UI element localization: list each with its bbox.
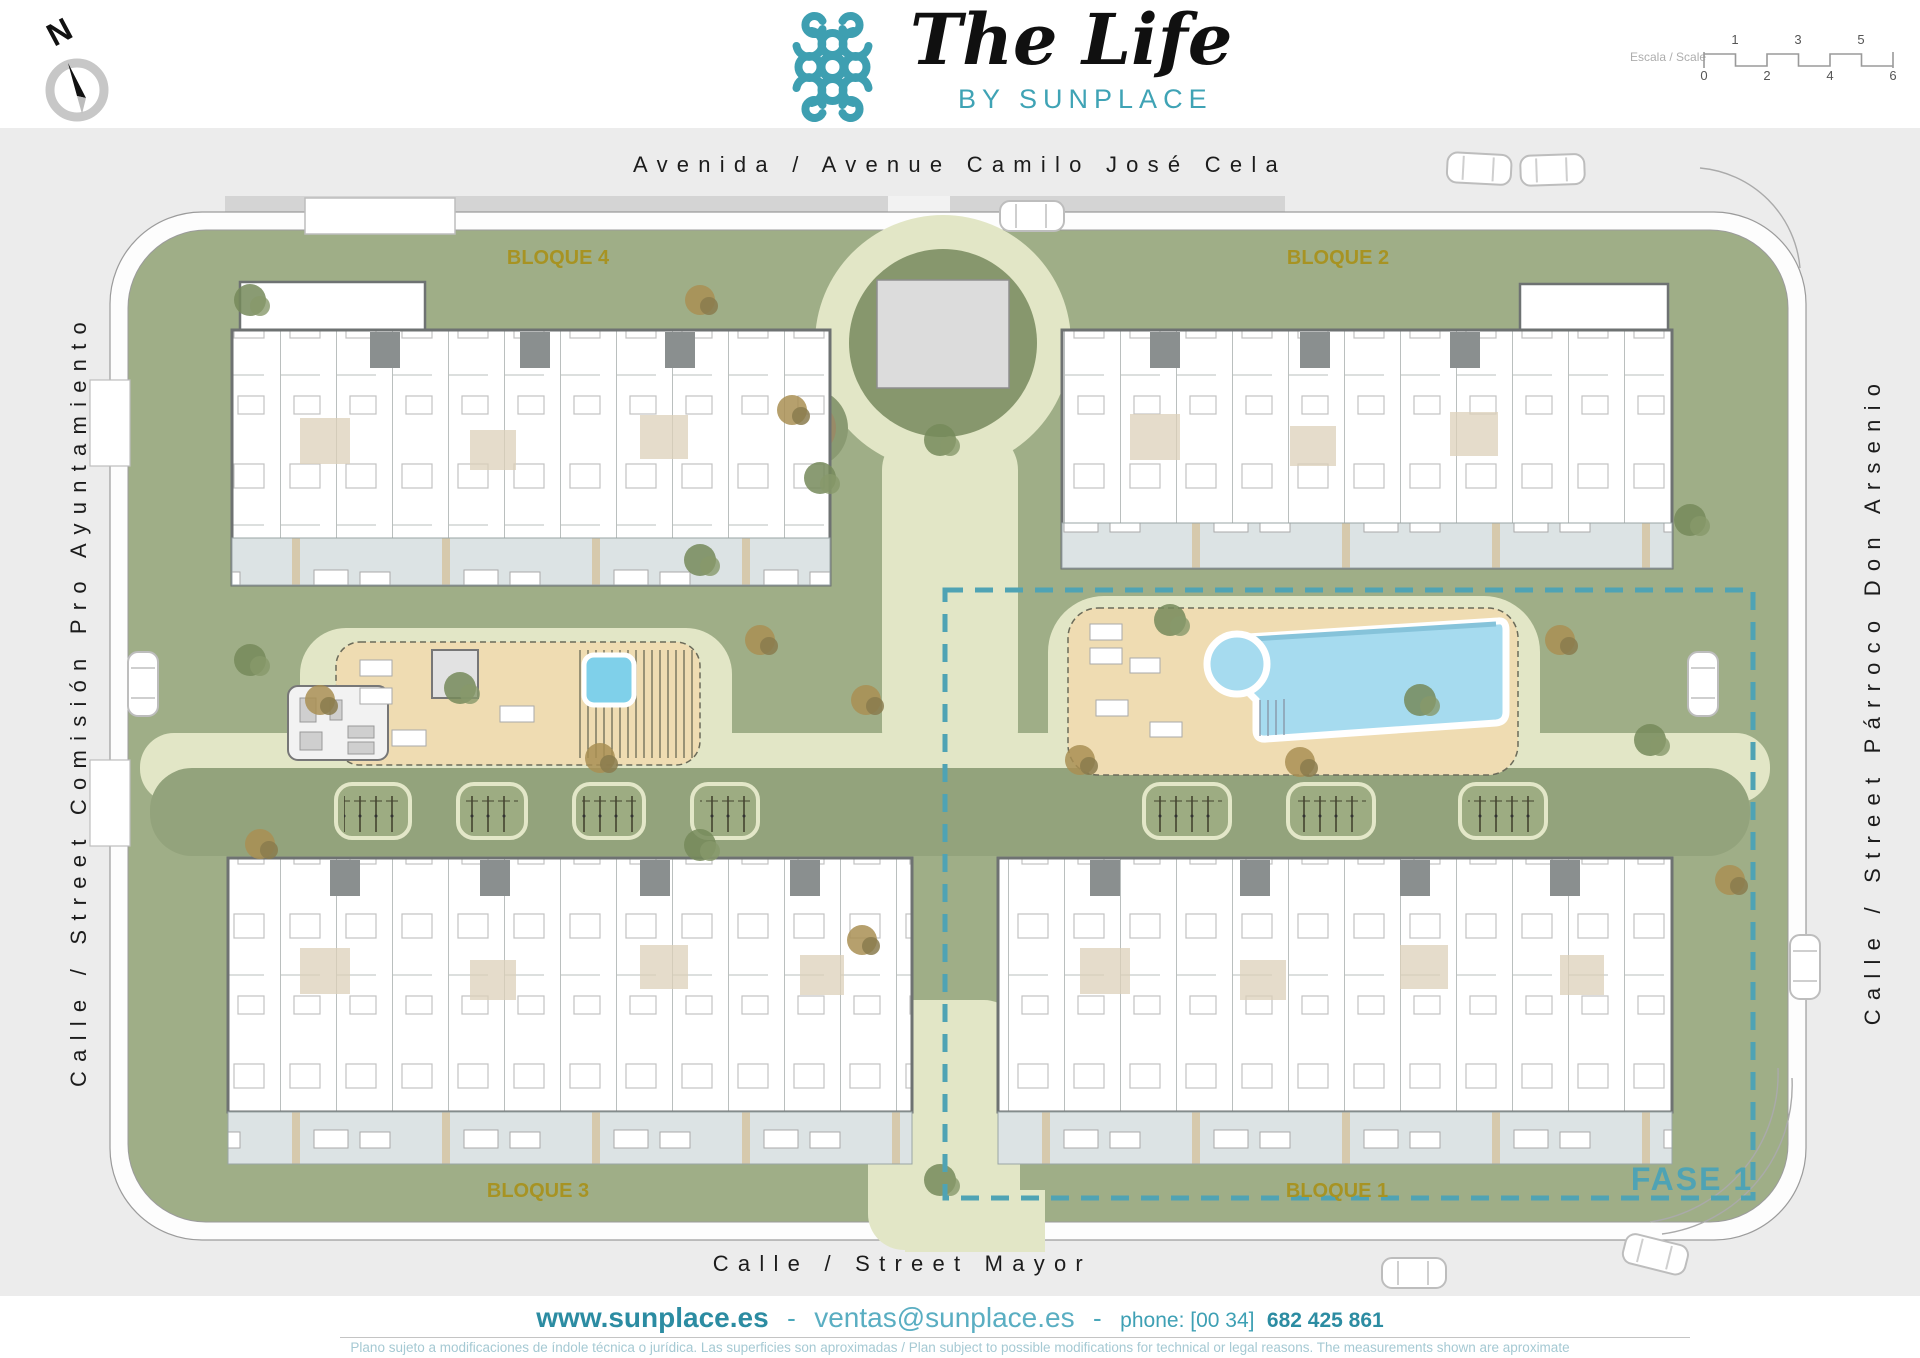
scale-tick: 6 — [1889, 68, 1896, 83]
footer-disclaimer: Plano sujeto a modificaciones de índole … — [0, 1340, 1920, 1355]
scale-bar-graphic — [1698, 36, 1908, 88]
left-amenity-deck — [288, 642, 700, 765]
north-label: N — [41, 10, 78, 53]
bloque-1-label: BLOQUE 1 — [1286, 1180, 1388, 1202]
scale-label: Escala / Scale — [1630, 50, 1706, 64]
compass-graphic: N — [14, 8, 124, 128]
jacuzzi-circle — [1207, 634, 1267, 694]
separator: - — [773, 1303, 810, 1333]
website-link[interactable]: www.sunplace.es — [536, 1302, 768, 1333]
street-label-avenida-camilo-jose-cela: Avenida / Avenue Camilo José Cela — [633, 152, 1287, 178]
street-label-calle-mayor: Calle / Street Mayor — [713, 1251, 1092, 1277]
phone-label: phone: [00 34] — [1120, 1309, 1254, 1332]
site-plan-page: BLOQUE 4 BLOQUE 2 BLOQUE 3 BLOQUE 1 FASE… — [0, 0, 1920, 1358]
phone-number[interactable]: 682 425 861 — [1259, 1309, 1384, 1332]
fase-1-label: FASE 1 — [1631, 1161, 1753, 1197]
bloque-3-label: BLOQUE 3 — [487, 1180, 589, 1202]
scale-tick: 4 — [1826, 68, 1833, 83]
logo-title: The Life — [910, 0, 1232, 81]
bloque-2-label: BLOQUE 2 — [1287, 247, 1389, 269]
footer: www.sunplace.es - ventas@sunplace.es - p… — [0, 1296, 1920, 1358]
compass: N — [14, 8, 124, 128]
scale-tick: 1 — [1731, 32, 1738, 47]
street-label-parroco-don-arsenio: Calle / Street Párroco Don Arsenio — [1860, 375, 1886, 1025]
building-bloque-3 — [228, 858, 912, 1164]
scale-tick: 0 — [1700, 68, 1707, 83]
scale-tick: 2 — [1763, 68, 1770, 83]
scale-tick: 3 — [1794, 32, 1801, 47]
footer-divider — [340, 1337, 1690, 1338]
masterplan-drawing: BLOQUE 4 BLOQUE 2 BLOQUE 3 BLOQUE 1 FASE… — [0, 0, 1920, 1358]
logo: The Life BY SUNPLACE — [770, 4, 1270, 126]
street-label-comision-pro-ayuntamiento: Calle / Street Comisión Pro Ayuntamiento — [66, 313, 92, 1087]
footer-contact-line: www.sunplace.es - ventas@sunplace.es - p… — [0, 1302, 1920, 1334]
utility-building — [877, 280, 1009, 388]
scale-tick: 5 — [1857, 32, 1864, 47]
sunplace-knot-icon — [770, 8, 895, 126]
email-link[interactable]: ventas@sunplace.es — [814, 1302, 1074, 1333]
logo-subtitle: BY SUNPLACE — [958, 84, 1213, 115]
scale-bar: Escala / Scale 1 3 5 0 2 4 6 — [1630, 36, 1910, 88]
bloque-4-label: BLOQUE 4 — [507, 247, 610, 269]
jacuzzi-square — [584, 655, 634, 705]
building-bloque-1 — [998, 858, 1672, 1164]
separator: - — [1079, 1303, 1116, 1333]
